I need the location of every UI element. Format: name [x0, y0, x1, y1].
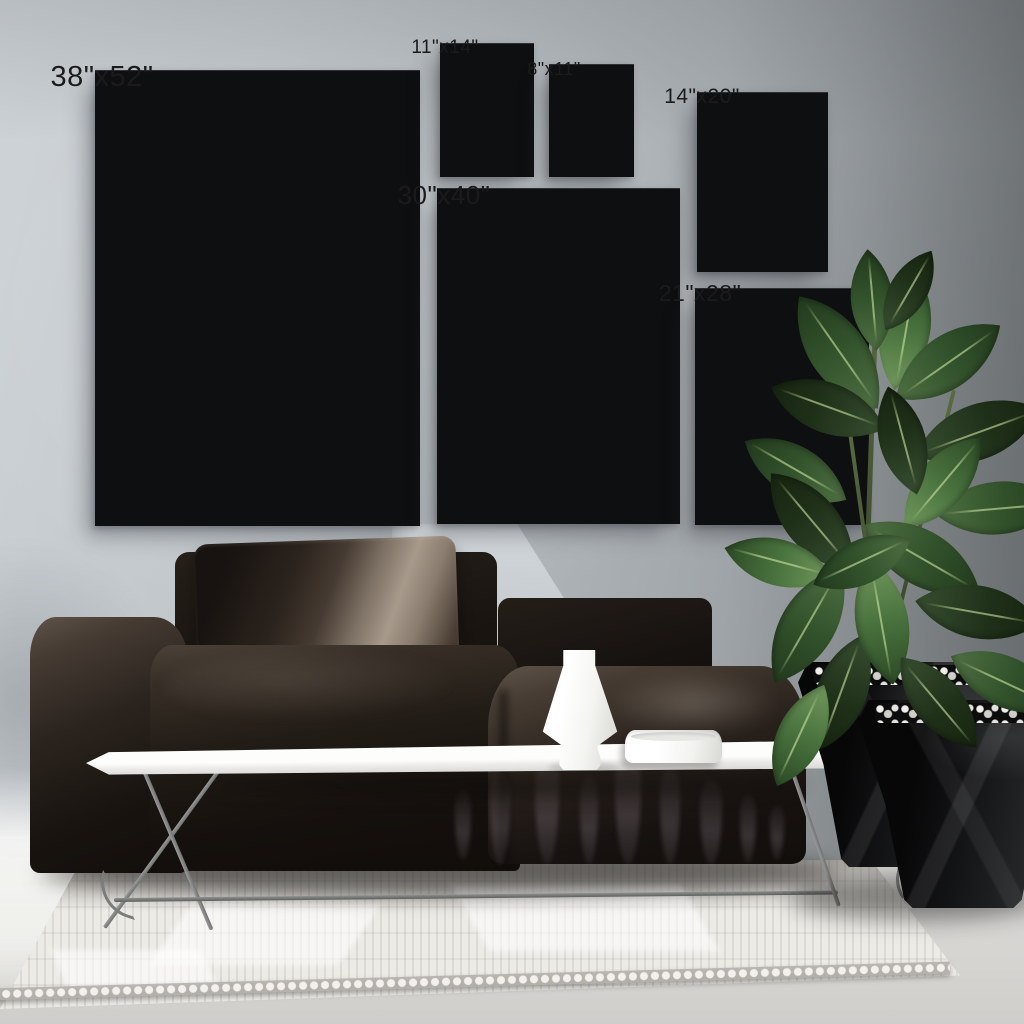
frame-11x14: 11"x14" — [440, 43, 534, 177]
frame-size-label: 38"x52" — [50, 61, 153, 94]
frame-size-label: 14"x20" — [664, 85, 740, 109]
living-room-frame-size-mockup: 38"x52" 11"x14" 8"x11" 14"x20" 30"x40" 2… — [0, 0, 1024, 1024]
bowl — [625, 730, 722, 763]
frame-size-label: 30"x40" — [398, 180, 491, 211]
frame-14x20: 14"x20" — [697, 92, 828, 272]
frame-size-label: 21"x28" — [659, 280, 742, 307]
frame-38x52: 38"x52" — [95, 70, 420, 526]
frame-30x40: 30"x40" — [437, 188, 680, 524]
frame-size-label: 8"x11" — [527, 59, 580, 80]
table-shadow — [215, 776, 805, 796]
frame-size-label: 11"x14" — [411, 37, 478, 59]
frame-8x11: 8"x11" — [549, 64, 634, 177]
